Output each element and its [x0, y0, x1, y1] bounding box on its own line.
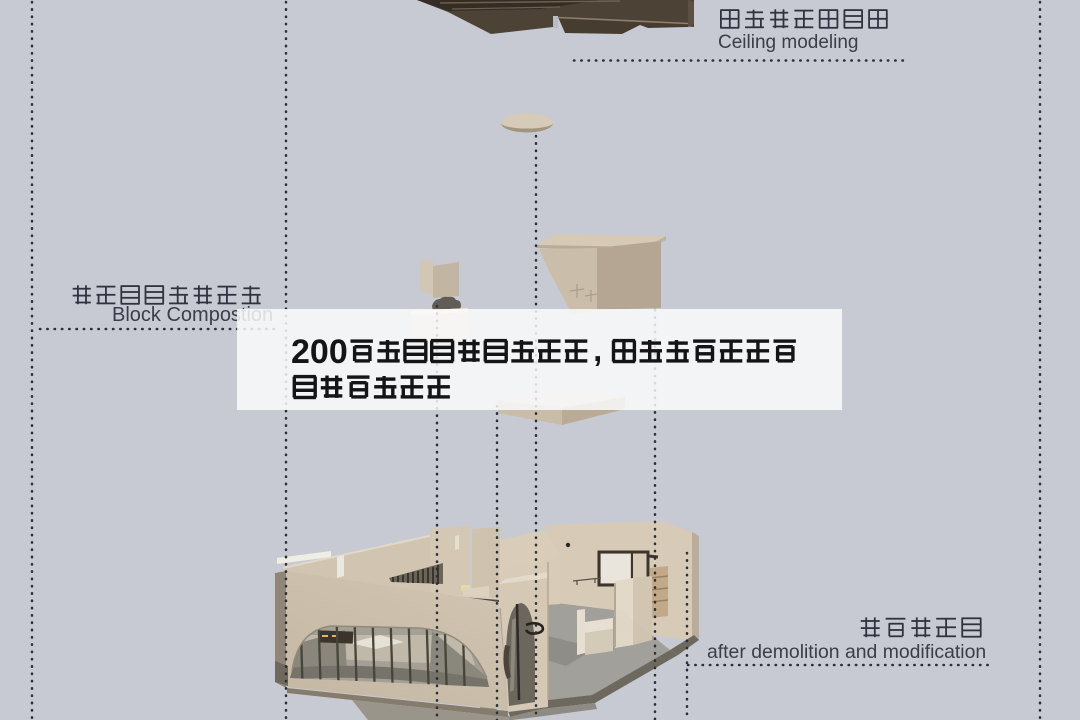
svg-text:200: 200 [291, 333, 348, 371]
svg-text:,: , [593, 332, 602, 368]
svg-text:after demolition and modificat: after demolition and modification [707, 641, 986, 663]
svg-text:Ceiling modeling: Ceiling modeling [718, 32, 858, 53]
